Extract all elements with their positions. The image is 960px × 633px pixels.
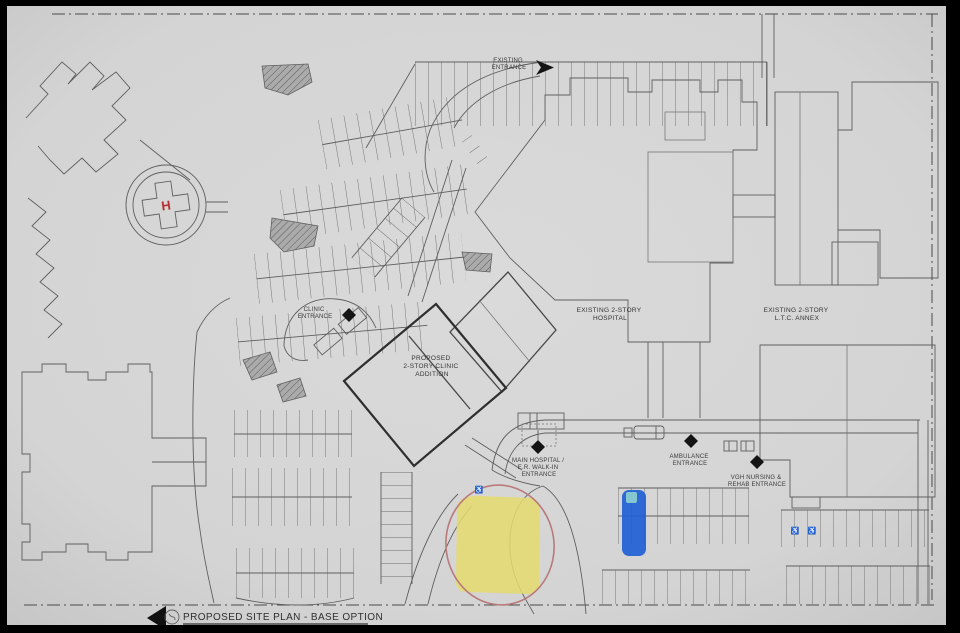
parking-column-sw xyxy=(381,472,412,584)
wheelchair-icon: ♿ xyxy=(808,526,817,535)
existing-entrance-label: EXISTING ENTRANCE xyxy=(492,58,527,71)
wheelchair-icon: ♿ xyxy=(475,485,484,494)
ambulance-entrance-label: AMBULANCE ENTRANCE xyxy=(669,454,710,467)
parking-row-sw3 xyxy=(236,548,354,598)
parking-row-se3 xyxy=(781,510,929,547)
bottom-black-bar xyxy=(0,625,960,633)
yellow-highlight-area xyxy=(456,496,540,594)
left-black-bar xyxy=(0,0,7,633)
wheelchair-icon: ♿ xyxy=(791,526,800,535)
parking-row-se2 xyxy=(602,570,750,604)
parking-row-top xyxy=(415,62,767,126)
parking-row-sw1 xyxy=(234,410,352,457)
parking-row-se4 xyxy=(786,566,930,604)
site-plan-drawing: H xyxy=(0,0,960,633)
site-plan-screenshot: H xyxy=(0,0,960,633)
parking-row-sw2 xyxy=(232,468,352,526)
top-black-bar xyxy=(0,0,960,6)
vgh-entrance-label: VGH NURSING & REHAB ENTRANCE xyxy=(728,475,786,488)
right-black-bar xyxy=(946,0,960,633)
blue-highlight-stall xyxy=(622,490,646,556)
plan-title: PROPOSED SITE PLAN - BASE OPTION xyxy=(183,612,383,623)
